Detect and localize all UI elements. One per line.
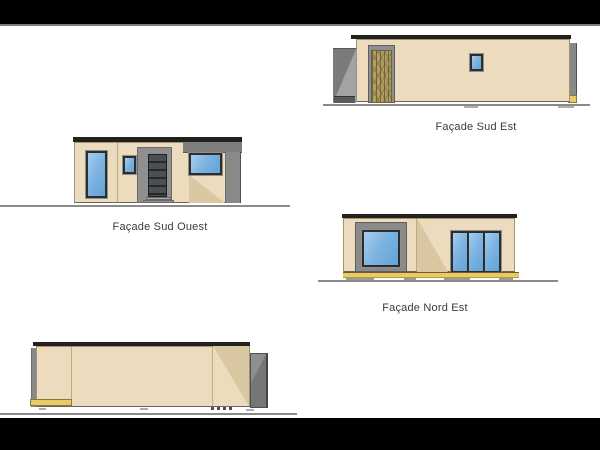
bottom-letterbox-bar	[0, 418, 600, 450]
end-wall-block	[250, 353, 268, 408]
ground-tick	[558, 106, 574, 108]
elevation-sheet: Façade Sud Est Façade Sud Ouest	[0, 0, 600, 450]
glass-panel	[469, 233, 483, 271]
panel-joint	[117, 142, 118, 203]
roof-band	[342, 214, 517, 218]
top-letterbox-bar	[0, 0, 600, 24]
tall-window	[86, 151, 107, 198]
glass-panel	[485, 233, 499, 271]
door-step-lower	[143, 200, 174, 203]
ground-tick	[464, 106, 478, 108]
side-wall-return	[569, 43, 577, 102]
main-wall	[36, 346, 250, 407]
base-shadow-dash	[499, 278, 513, 280]
ground-tick	[39, 408, 46, 410]
end-wall-highlight	[251, 354, 266, 407]
wide-window	[189, 153, 222, 175]
roof-band	[33, 342, 250, 346]
small-window	[123, 156, 136, 174]
base-shadow-dash	[404, 278, 416, 280]
carport-recess	[333, 48, 356, 103]
recess-shadow	[333, 49, 356, 103]
panel-joint	[212, 346, 213, 407]
panel-joint	[416, 218, 417, 272]
base-shadow-dash	[444, 278, 470, 280]
base-shadow-dash	[346, 278, 374, 280]
large-window	[362, 230, 400, 267]
ground-line	[323, 104, 590, 106]
facade-sud-est-label: Façade Sud Est	[396, 121, 556, 133]
foundation-vents	[211, 407, 233, 410]
small-window	[470, 54, 483, 71]
ground-tick	[246, 409, 254, 411]
letterbox-separator	[0, 24, 600, 26]
ground-tick	[140, 408, 148, 410]
side-wall-return	[225, 152, 241, 203]
sliding-glass-door	[451, 231, 501, 273]
panel-joint	[71, 346, 72, 407]
deck-strip	[30, 399, 72, 406]
ground-line	[0, 205, 290, 207]
facade-sud-ouest-label: Façade Sud Ouest	[80, 221, 240, 233]
entry-door	[148, 154, 167, 197]
facade-nord-est-label: Façade Nord Est	[345, 302, 505, 314]
glass-panel	[453, 233, 467, 271]
recess-step	[334, 96, 355, 103]
ground-line	[0, 413, 297, 415]
ground-line	[318, 280, 558, 282]
deck-strip	[343, 272, 519, 278]
wood-screen	[371, 50, 392, 103]
roof-band	[73, 137, 242, 142]
roof-band	[351, 35, 571, 39]
